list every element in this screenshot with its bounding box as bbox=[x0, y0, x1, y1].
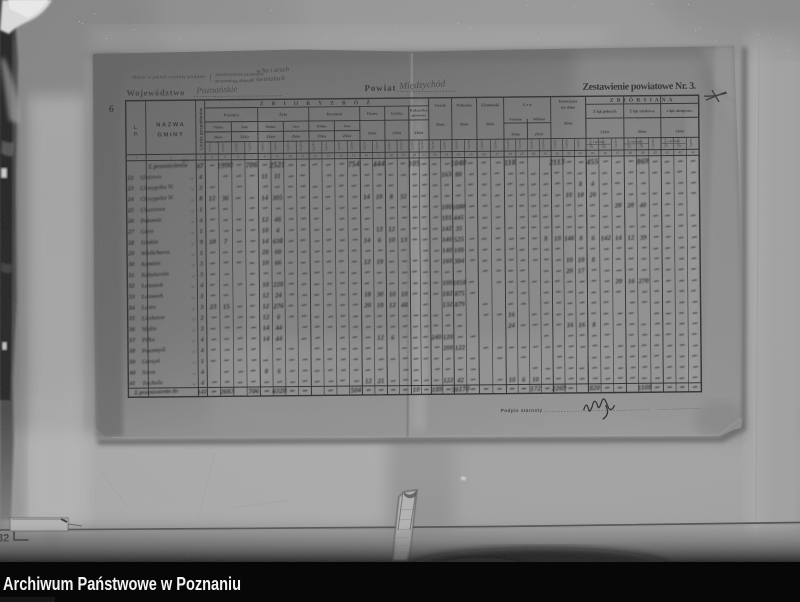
svg-text:Archiwum Państwowe w Poznaniu: Archiwum Państwowe w Poznaniu bbox=[3, 574, 241, 594]
